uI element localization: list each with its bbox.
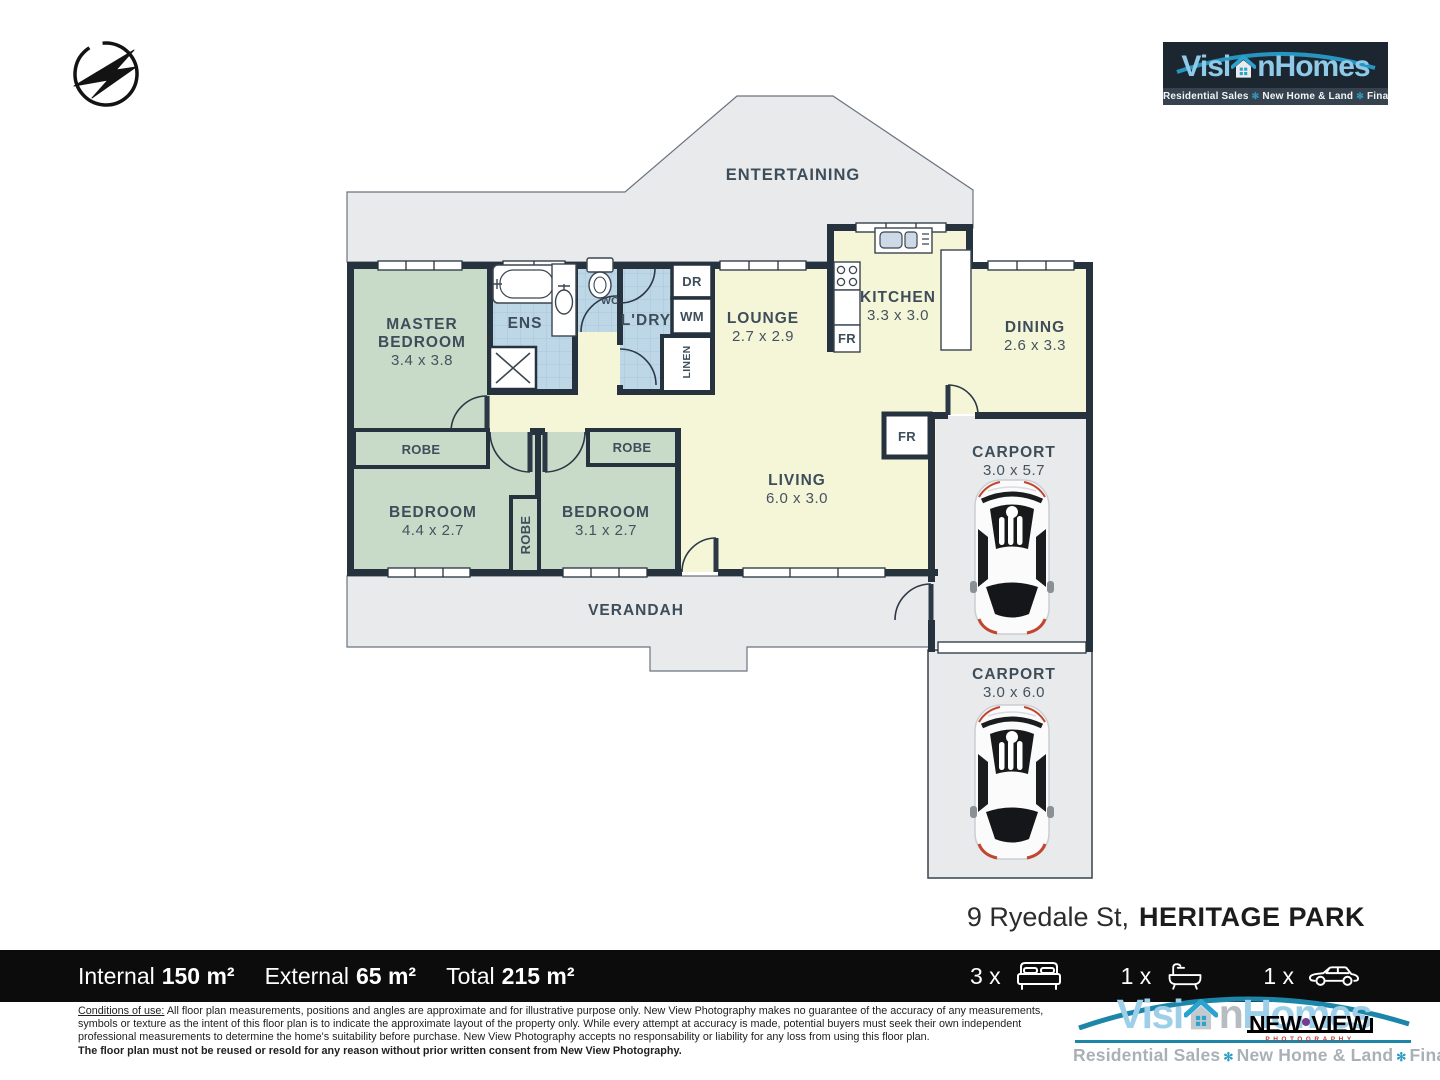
label-lounge-dims: 2.7 x 2.9: [732, 328, 794, 345]
label-dr: DR: [682, 274, 702, 289]
bathtub: [493, 265, 559, 303]
label-verandah: VERANDAH: [588, 602, 684, 619]
floorplan-drawing: ENTERTAINING MASTER BEDROOM 3.4 x 3.8 EN…: [0, 0, 1440, 950]
address-street: 9 Ryedale St,: [967, 902, 1129, 932]
disclaimer-line3: professional measurements to determine t…: [78, 1031, 1043, 1044]
label-wc: WC: [601, 295, 619, 307]
disclaimer-line4: The floor plan must not be reused or res…: [78, 1045, 1043, 1058]
label-carport2: CARPORT: [972, 666, 1056, 683]
label-fr-kitchen: FR: [838, 331, 856, 346]
label-carport1: CARPORT: [972, 444, 1056, 461]
label-bedroom2: BEDROOM: [562, 504, 650, 521]
label-kitchen: KITCHEN: [860, 289, 936, 306]
label-bedroom1: BEDROOM: [389, 504, 477, 521]
label-fr-living: FR: [898, 429, 916, 444]
window: [743, 568, 885, 577]
vanity: [552, 264, 576, 336]
stat-external: External65 m²: [265, 963, 416, 990]
property-address: 9 Ryedale St,HERITAGE PARK: [967, 902, 1365, 933]
window: [388, 568, 470, 577]
house-icon: [1184, 999, 1218, 1031]
label-robe-mid: ROBE: [518, 516, 533, 555]
label-linen: LINEN: [681, 346, 693, 379]
label-master-dims: 3.4 x 3.8: [391, 352, 453, 369]
tagline-separator-icon: ✻: [1220, 1050, 1236, 1064]
bedroom-count: 3 x: [970, 959, 1063, 993]
label-dining: DINING: [1005, 319, 1065, 336]
stat-total: Total215 m²: [446, 963, 574, 990]
label-master-1: MASTER: [386, 316, 457, 333]
label-bedroom1-dims: 4.4 x 2.7: [402, 522, 464, 539]
label-carport1-dims: 3.0 x 5.7: [983, 462, 1045, 479]
label-lounge: LOUNGE: [727, 310, 799, 327]
shower: [490, 347, 536, 389]
kitchen-peninsula: [941, 250, 971, 350]
newview-photography-logo: NEWVIEW PHOTOGRAPHY: [1247, 1018, 1373, 1045]
label-living-dims: 6.0 x 3.0: [766, 490, 828, 507]
window: [378, 261, 462, 270]
label-master-2: BEDROOM: [378, 334, 466, 351]
address-suburb: HERITAGE PARK: [1139, 902, 1365, 932]
label-kitchen-dims: 3.3 x 3.0: [867, 307, 929, 324]
kitchen-sink: [875, 228, 932, 253]
label-living: LIVING: [768, 472, 826, 489]
hall-strip-floor: [578, 332, 620, 392]
hall-floor: [460, 392, 715, 432]
label-ldry: L'DRY: [621, 312, 671, 329]
tagline-separator-icon: ✻: [1393, 1050, 1409, 1064]
window: [720, 261, 806, 270]
stat-internal: Internal150 m²: [78, 963, 235, 990]
window: [563, 568, 647, 577]
label-bedroom2-dims: 3.1 x 2.7: [575, 522, 637, 539]
disclaimer-line1: Conditions of use: All floor plan measur…: [78, 1005, 1043, 1018]
window: [988, 261, 1074, 270]
label-carport2-dims: 3.0 x 6.0: [983, 684, 1045, 701]
visionhomes-logo-footer: VisinHomes Residential Sales✻New Home & …: [1073, 988, 1415, 1068]
car-top-view: [970, 480, 1054, 634]
label-dining-dims: 2.6 x 3.3: [1004, 337, 1066, 354]
newview-photography-label: PHOTOGRAPHY: [1247, 1035, 1373, 1045]
label-robe-master: ROBE: [402, 442, 441, 457]
label-wm: WM: [680, 309, 704, 324]
newview-dot-icon: [1302, 1018, 1310, 1026]
car-top-view: [970, 705, 1054, 859]
logo-tagline: Residential Sales✻New Home & Land✻Financ…: [1073, 1045, 1415, 1066]
carport-opening: [938, 642, 1086, 653]
label-entertaining: ENTERTAINING: [726, 166, 861, 184]
label-ens: ENS: [508, 315, 543, 332]
bed-icon: [1015, 959, 1063, 993]
newview-wordmark: NEWVIEW: [1247, 1018, 1373, 1033]
verandah-area: [347, 576, 938, 671]
disclaimer-line2: symbols or texture as the intent of this…: [78, 1018, 1043, 1031]
floorplan-page: VisinHomes Residential Sales✻New Home & …: [0, 0, 1440, 1080]
toilet: [587, 258, 613, 298]
conditions-of-use: Conditions of use: All floor plan measur…: [78, 1005, 1043, 1058]
area-stats: Internal150 m² External65 m² Total215 m²: [78, 963, 575, 990]
label-robe-bed2: ROBE: [613, 440, 652, 455]
